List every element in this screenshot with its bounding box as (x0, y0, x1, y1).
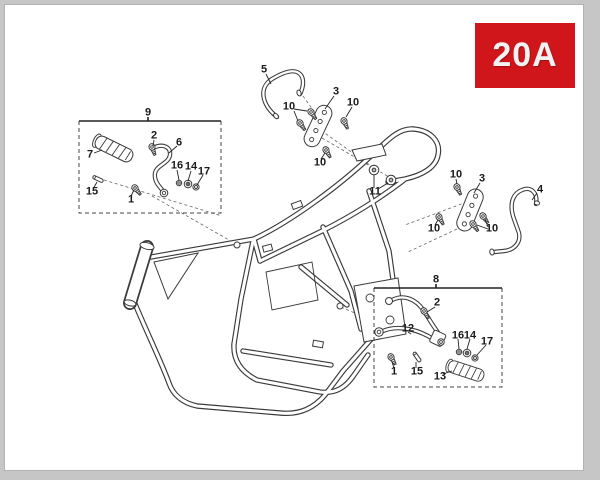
callout-15: 15 (411, 367, 423, 378)
callout-1: 1 (391, 367, 397, 378)
parts-diagram-page: 20A 972616141715151031010111031010482121… (0, 0, 600, 480)
callout-10: 10 (428, 224, 440, 235)
callout-8: 8 (433, 275, 439, 286)
callout-11: 11 (369, 187, 381, 198)
callout-10: 10 (283, 102, 295, 113)
callout-4: 4 (537, 185, 543, 196)
callout-9: 9 (145, 108, 151, 119)
callout-10: 10 (486, 224, 498, 235)
callout-13: 13 (434, 372, 446, 383)
callout-16: 16 (452, 331, 464, 342)
callout-17: 17 (481, 337, 493, 348)
callout-10: 10 (314, 158, 326, 169)
callout-14: 14 (185, 162, 197, 173)
callout-12: 12 (402, 324, 414, 335)
callout-16: 16 (171, 161, 183, 172)
callout-5: 5 (261, 65, 267, 76)
callout-layer: 9726161417151510310101110310104821216141… (0, 0, 600, 480)
callout-3: 3 (479, 174, 485, 185)
callout-3: 3 (333, 87, 339, 98)
callout-14: 14 (464, 331, 476, 342)
callout-2: 2 (434, 298, 440, 309)
callout-17: 17 (198, 167, 210, 178)
callout-6: 6 (176, 138, 182, 149)
callout-10: 10 (450, 170, 462, 181)
callout-7: 7 (87, 150, 93, 161)
callout-15: 15 (86, 187, 98, 198)
callout-2: 2 (151, 131, 157, 142)
callout-1: 1 (128, 195, 134, 206)
callout-10: 10 (347, 98, 359, 109)
